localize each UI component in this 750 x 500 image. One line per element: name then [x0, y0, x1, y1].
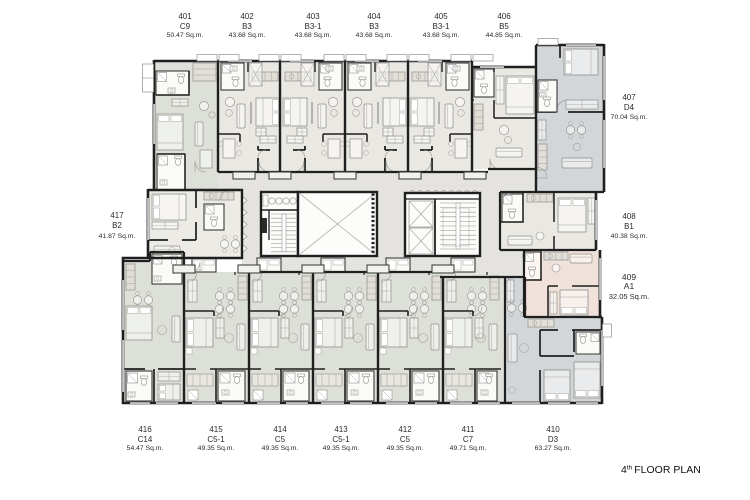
- svg-text:40.38 Sq.m.: 40.38 Sq.m.: [611, 233, 648, 240]
- svg-text:404: 404: [367, 12, 381, 21]
- svg-text:A1: A1: [624, 281, 635, 291]
- svg-text:49.35 Sq.m.: 49.35 Sq.m.: [323, 445, 360, 452]
- svg-text:43.68 Sq.m.: 43.68 Sq.m.: [423, 32, 460, 39]
- svg-text:414: 414: [273, 425, 287, 434]
- svg-text:417: 417: [110, 211, 124, 220]
- svg-text:43.68 Sq.m.: 43.68 Sq.m.: [356, 32, 393, 39]
- svg-text:C5: C5: [400, 435, 411, 444]
- svg-text:C5: C5: [275, 435, 286, 444]
- svg-text:416: 416: [138, 425, 152, 434]
- svg-text:407: 407: [622, 93, 636, 102]
- svg-text:401: 401: [178, 12, 192, 21]
- svg-text:406: 406: [497, 12, 511, 21]
- svg-text:63.27 Sq.m.: 63.27 Sq.m.: [535, 445, 572, 452]
- svg-text:44.85 Sq.m.: 44.85 Sq.m.: [486, 32, 523, 39]
- svg-text:B3-1: B3-1: [433, 22, 450, 31]
- svg-text:B3: B3: [369, 22, 379, 31]
- svg-text:C5-1: C5-1: [207, 435, 225, 444]
- svg-text:49.35 Sq.m.: 49.35 Sq.m.: [198, 445, 235, 452]
- svg-text:49.35 Sq.m.: 49.35 Sq.m.: [262, 445, 299, 452]
- svg-text:B2: B2: [112, 221, 122, 230]
- svg-text:403: 403: [306, 12, 320, 21]
- svg-text:C9: C9: [180, 22, 191, 31]
- svg-text:412: 412: [398, 425, 412, 434]
- svg-text:C5-1: C5-1: [332, 435, 350, 444]
- svg-text:70.04 Sq.m.: 70.04 Sq.m.: [611, 114, 648, 121]
- svg-text:B3-1: B3-1: [305, 22, 322, 31]
- svg-text:411: 411: [462, 425, 475, 434]
- svg-text:408: 408: [622, 212, 636, 221]
- svg-text:C7: C7: [463, 435, 474, 444]
- svg-text:D4: D4: [624, 103, 635, 112]
- svg-text:402: 402: [240, 12, 254, 21]
- svg-text:41.87 Sq.m.: 41.87 Sq.m.: [99, 233, 136, 240]
- svg-text:43.68 Sq.m.: 43.68 Sq.m.: [295, 32, 332, 39]
- svg-text:D3: D3: [548, 435, 559, 444]
- svg-text:32.05 Sq.m.: 32.05 Sq.m.: [609, 292, 649, 301]
- svg-text:413: 413: [334, 425, 348, 434]
- svg-text:410: 410: [546, 425, 560, 434]
- svg-text:B5: B5: [499, 22, 509, 31]
- svg-text:B3: B3: [242, 22, 252, 31]
- svg-text:B1: B1: [624, 222, 634, 231]
- svg-text:49.35 Sq.m.: 49.35 Sq.m.: [387, 445, 424, 452]
- svg-text:50.47 Sq.m.: 50.47 Sq.m.: [167, 32, 204, 39]
- svg-text:405: 405: [434, 12, 448, 21]
- svg-text:43.68 Sq.m.: 43.68 Sq.m.: [229, 32, 266, 39]
- svg-text:49.71 Sq.m.: 49.71 Sq.m.: [450, 445, 487, 452]
- svg-text:415: 415: [209, 425, 223, 434]
- svg-text:54.47 Sq.m.: 54.47 Sq.m.: [127, 445, 164, 452]
- svg-text:C14: C14: [138, 435, 153, 444]
